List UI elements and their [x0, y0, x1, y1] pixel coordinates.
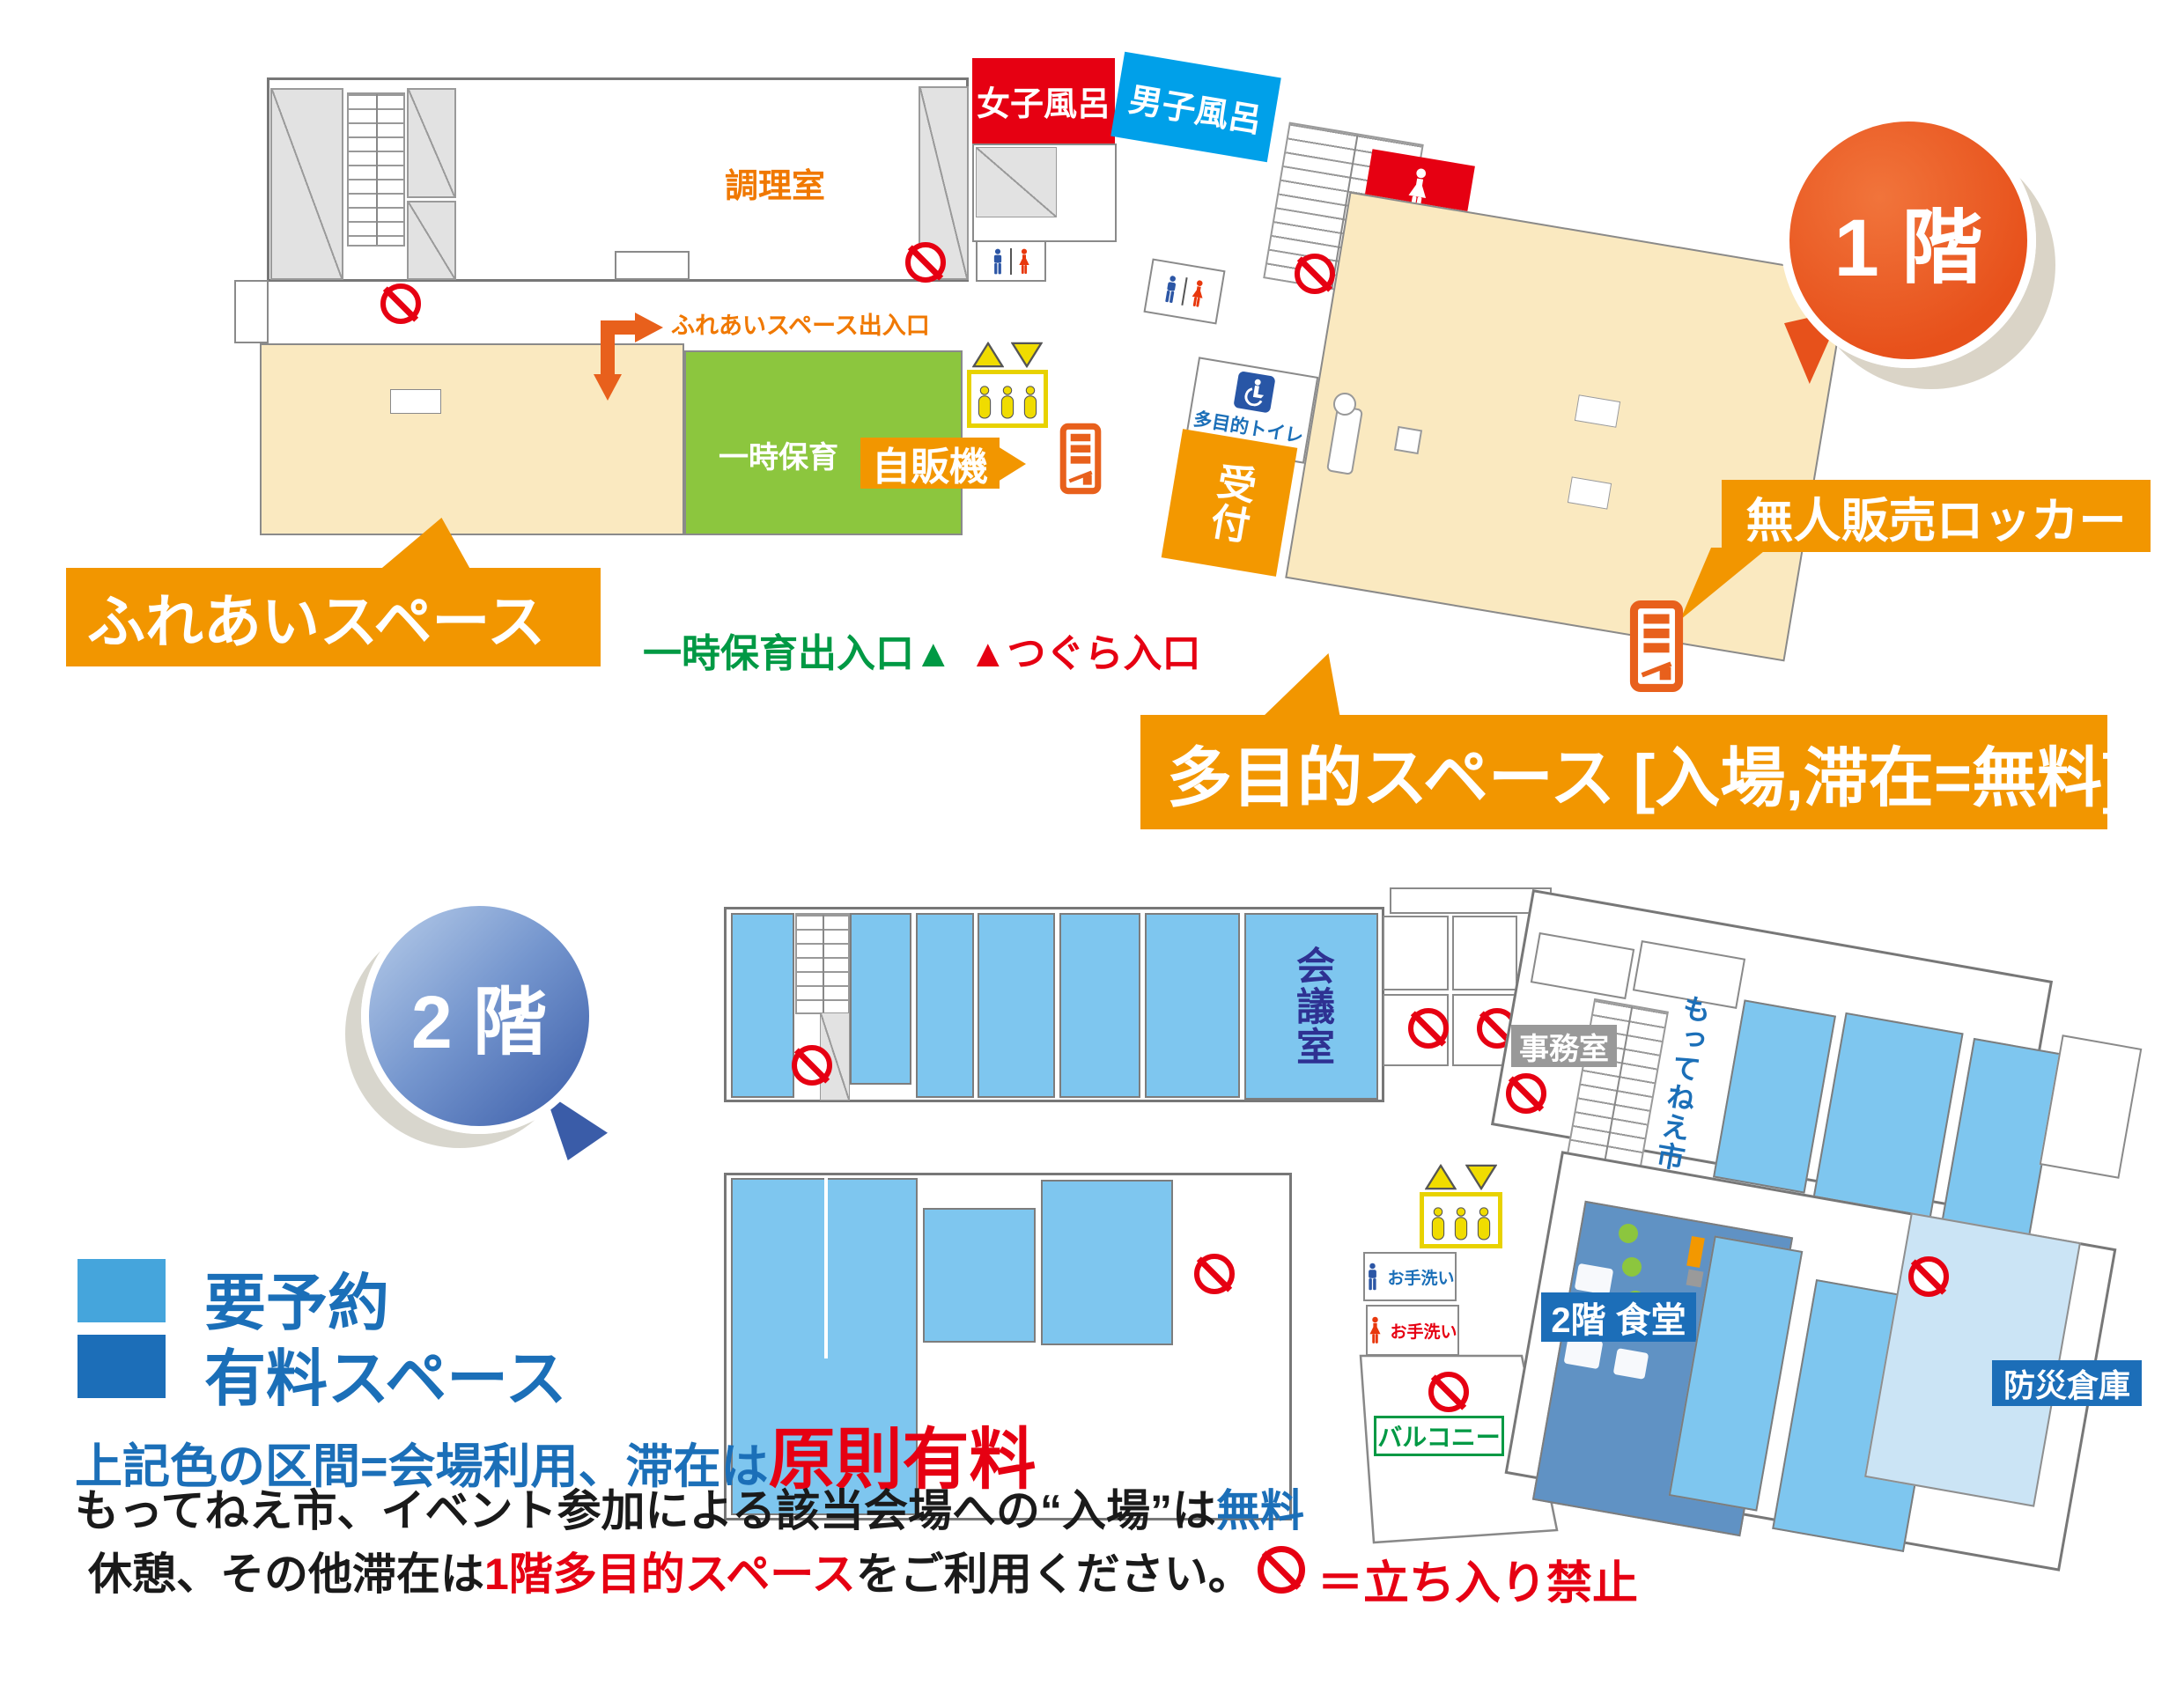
- childcare-room-label: 一時保育: [690, 433, 867, 476]
- restroom-men-room: お手洗い: [1363, 1252, 1457, 1301]
- room-divider: [824, 1178, 828, 1358]
- reservable-room: [1145, 913, 1240, 1098]
- storage-room: [270, 88, 343, 280]
- disaster-storage-label-text: 防災倉庫: [2003, 1360, 2130, 1406]
- office-label-text: 事務室: [1519, 1025, 1609, 1068]
- reservable-room: [850, 913, 911, 1085]
- roof-bump: [1390, 887, 1552, 914]
- man-icon: [1365, 1263, 1380, 1291]
- man-icon: [991, 248, 1005, 275]
- reservable-room: [923, 1208, 1036, 1343]
- small-room: [1383, 916, 1449, 990]
- women-bath-room: 女子風呂: [972, 58, 1115, 144]
- storage-room: [976, 147, 1057, 217]
- no-entry-icon: [792, 1045, 832, 1086]
- wheelchair-icon: [1233, 371, 1275, 413]
- restroom-men-label: お手洗い: [1387, 1265, 1454, 1289]
- men-bath-room: 男子風呂: [1110, 52, 1281, 162]
- no-entry-icon: [1295, 254, 1335, 294]
- legend-no-entry-label: ＝立ち入り禁止: [1317, 1546, 1638, 1612]
- woman-icon: [1368, 1316, 1383, 1344]
- legend-swatch-reservation: [77, 1259, 166, 1322]
- elevator-icon: [1420, 1164, 1502, 1248]
- reservable-room: [916, 913, 974, 1098]
- restroom-women-room: お手洗い: [1366, 1305, 1459, 1356]
- men-bath-label: 男子風呂: [1125, 72, 1265, 142]
- meeting-room: 会議室: [1244, 913, 1378, 1100]
- restroom-women-label: お手洗い: [1390, 1319, 1457, 1343]
- small-room: [1452, 916, 1517, 990]
- toilet-room: [1143, 258, 1225, 324]
- note3-black-a-text: 休憩、その他滞在は: [88, 1539, 484, 1602]
- multipurpose-callout: 多目的スペース [入場,滞在=無料]: [1140, 715, 2107, 829]
- no-entry-icon: [1194, 1254, 1235, 1294]
- women-bath-label: 女子風呂: [977, 77, 1110, 125]
- elevator-icon: [967, 342, 1048, 428]
- woman-icon: [1188, 278, 1207, 308]
- dining-label-text: 2階 食堂: [1551, 1292, 1686, 1343]
- no-entry-icon: [1428, 1372, 1469, 1412]
- locker-callout: 無人販売ロッカー: [1722, 480, 2151, 552]
- man-icon: [1162, 274, 1181, 304]
- woman-icon: [1017, 248, 1031, 275]
- small-room: [615, 251, 690, 280]
- room-notch: [390, 389, 441, 414]
- no-entry-icon: [905, 242, 946, 283]
- note2-black-text: もってねえ市、イベント参加による該当会場への“入場”は: [75, 1476, 1216, 1539]
- table-icon: [1613, 1348, 1649, 1380]
- floor1-bubble: 1 階: [1781, 113, 2036, 368]
- no-entry-icon: [1506, 1073, 1546, 1114]
- entrance-arrow-icon: [586, 304, 674, 402]
- no-entry-icon: [1908, 1256, 1949, 1297]
- no-entry-icon: [380, 283, 421, 324]
- disaster-storage-label: 防災倉庫: [1992, 1360, 2142, 1406]
- entry-alcove: [234, 280, 269, 343]
- no-entry-icon: [1408, 1008, 1449, 1049]
- balcony-label: バルコニー: [1374, 1416, 1504, 1456]
- childcare-entrance-label: 一時保育出入口▲: [643, 622, 953, 678]
- plant-icon: [1619, 1224, 1638, 1243]
- note3-black-b-text: をご利用ください。: [856, 1539, 1252, 1602]
- storage-room: [407, 201, 456, 280]
- reservable-room: [978, 913, 1055, 1098]
- reservable-room: [1041, 1180, 1173, 1345]
- multipurpose-callout-tail: [1261, 653, 1340, 718]
- floor2-bubble: 2 階: [361, 898, 597, 1134]
- reservable-room: [731, 913, 794, 1098]
- fureai-space-callout: ふれあいスペース: [66, 568, 601, 666]
- tsugura-entrance-label: ▲つぐら入口: [969, 622, 1201, 678]
- note2-blue-text: 無料: [1216, 1476, 1304, 1539]
- stairs-icon: [795, 913, 850, 1014]
- legend-note2: もってねえ市、イベント参加による該当会場への“入場”は無料: [75, 1476, 1304, 1539]
- balcony-label-text: バルコニー: [1377, 1418, 1500, 1454]
- meeting-room-label: 会議室: [1283, 946, 1339, 1067]
- floor1-bubble-label: 1 階: [1834, 182, 1983, 299]
- floor2-bubble-label: 2 階: [411, 963, 547, 1070]
- kitchen-room-label: 調理室: [669, 158, 881, 207]
- reception-label: 受付: [1195, 458, 1264, 547]
- stairs-icon: [347, 92, 405, 247]
- reservable-room: [1059, 913, 1140, 1098]
- fureai-entrance-label: ふれあいスペース出入口: [671, 306, 930, 341]
- note3-red-text: 1階多目的スペース: [484, 1539, 856, 1602]
- multipurpose-space-room: [1285, 192, 1849, 662]
- pillar: [1394, 426, 1422, 454]
- locker-machine-icon: [1629, 599, 1684, 694]
- legend-swatch-paid: [77, 1335, 166, 1398]
- vending-machine-icon: [1059, 421, 1102, 497]
- storage-room: [407, 88, 456, 198]
- legend-note3: 休憩、その他滞在は1階多目的スペースをご利用ください。: [88, 1539, 1252, 1602]
- plant-icon: [1622, 1257, 1642, 1277]
- vending-callout: 自販機: [860, 438, 1000, 489]
- reception-room: 受付: [1162, 429, 1298, 577]
- dining-label: 2階 食堂: [1541, 1292, 1696, 1342]
- office-room-label: 事務室: [1511, 1025, 1617, 1067]
- facility-floor-map: 調理室 一時保育 ふれあいスペース出入口 自販機: [0, 0, 2184, 1708]
- counter-icon: [1686, 1270, 1704, 1288]
- toilet-room: [976, 240, 1046, 282]
- no-entry-icon: [1258, 1546, 1305, 1594]
- vending-callout-tail: [998, 446, 1026, 482]
